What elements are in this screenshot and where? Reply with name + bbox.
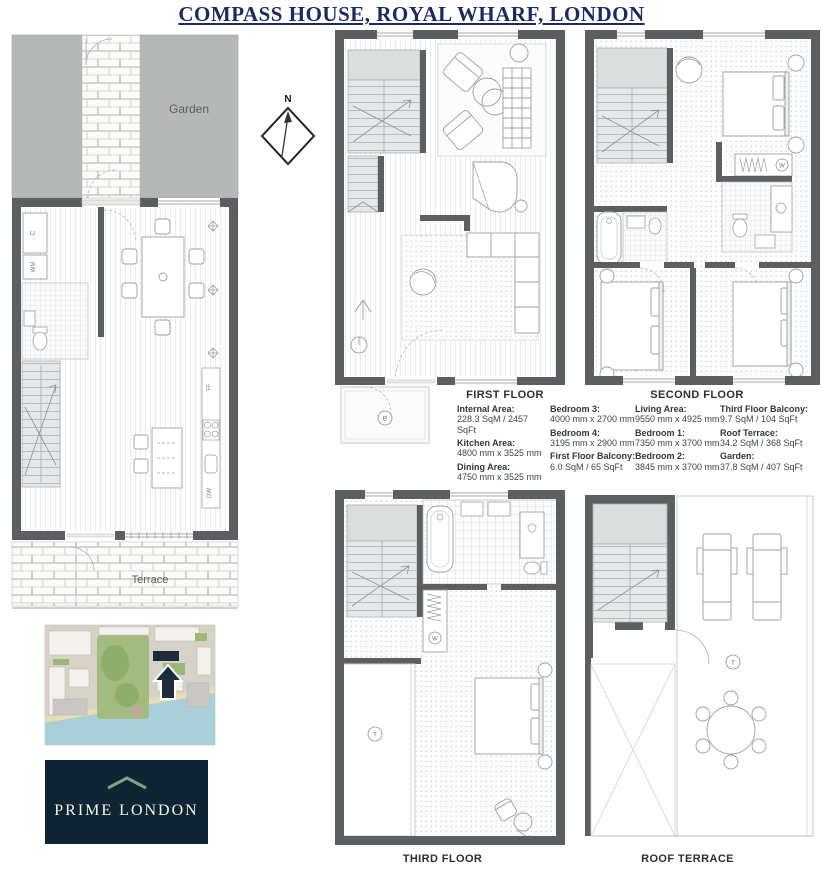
spec-label: Internal Area: xyxy=(457,404,549,414)
side-table-icon xyxy=(788,137,804,153)
ground-stairs xyxy=(22,361,60,487)
spec-value: 3195 mm x 2900 mm xyxy=(550,438,645,448)
spec-value: 9550 mm x 4925 mm xyxy=(635,414,727,424)
second-floor-specs-col2: Third Floor Balcony: 9.7 SqM / 104 SqFt … xyxy=(720,404,820,475)
garden-label: Garden xyxy=(169,102,209,116)
wardrobe-icon: W xyxy=(423,590,447,652)
spec-value: 9.7 SqM / 104 SqFt xyxy=(720,414,820,424)
park-green xyxy=(97,635,149,719)
terrace-symbol: T xyxy=(373,732,377,739)
pillow-icon xyxy=(773,106,784,130)
first-floor-specs-col1: Internal Area: 228.3 SqM / 2457 SqFt Kit… xyxy=(457,404,549,485)
second-floor-heading: SECOND FLOOR xyxy=(627,389,767,401)
roof-deck xyxy=(677,496,813,836)
site-map xyxy=(45,625,215,745)
wardrobe-symbol: W xyxy=(779,164,785,170)
garden-area: Garden xyxy=(12,35,238,198)
spec-label: Roof Terrace: xyxy=(720,428,820,438)
ensuite-bathroom xyxy=(722,182,792,252)
compass-rose: N xyxy=(262,94,314,164)
toilet-icon xyxy=(649,218,661,234)
spec-row: Dining Area: 4750 mm x 3525 mm xyxy=(457,462,549,483)
second-floor-plan: W xyxy=(585,30,820,385)
bedroom2 xyxy=(600,269,663,381)
terrace-area: Terrace xyxy=(12,542,238,608)
sink-icon xyxy=(627,216,645,228)
first-floor-plan: B xyxy=(335,30,565,443)
spec-label: First Floor Balcony: xyxy=(550,451,645,461)
sink-icon xyxy=(461,502,483,516)
cupboard-label: C xyxy=(30,230,37,235)
wardrobe-icon: W xyxy=(735,154,792,176)
side-table-icon xyxy=(788,55,804,71)
logo-text: PRIME LONDON xyxy=(45,802,208,820)
first-floor-specs-col2: Bedroom 3: 4000 mm x 2700 mm Bedroom 4: … xyxy=(550,404,645,475)
spec-value: 34.2 SqM / 368 SqFt xyxy=(720,438,820,448)
spec-value: 228.3 SqM / 2457 SqFt xyxy=(457,414,549,435)
toilet-icon xyxy=(733,219,747,237)
spec-row: Internal Area: 228.3 SqM / 2457 SqFt xyxy=(457,404,549,435)
spec-row: Bedroom 2: 3845 mm x 3700 mm xyxy=(635,451,727,472)
spec-value: 37.8 SqM / 407 SqFt xyxy=(720,462,820,472)
spec-value: 6.0 SqM / 65 SqFt xyxy=(550,462,645,472)
spec-label: Bedroom 2: xyxy=(635,451,727,461)
spec-row: Roof Terrace: 34.2 SqM / 368 SqFt xyxy=(720,428,820,449)
spec-label: Bedroom 4: xyxy=(550,428,645,438)
toilet-icon xyxy=(524,562,540,574)
spec-row: First Floor Balcony: 6.0 SqM / 65 SqFt xyxy=(550,451,645,472)
balcony-symbol: B xyxy=(383,416,387,423)
spec-row: Bedroom 3: 4000 mm x 2700 mm xyxy=(550,404,645,425)
living-area xyxy=(438,44,546,156)
spec-value: 3845 mm x 3700 mm xyxy=(635,462,727,472)
sink-icon xyxy=(755,235,775,248)
vanity-icon xyxy=(520,512,544,558)
roof-terrace-caption: ROOF TERRACE xyxy=(630,853,745,865)
first-balcony: B xyxy=(341,387,429,443)
roof-void xyxy=(585,658,675,836)
floorplan-sheet: COMPASS HOUSE, ROYAL WHARF, LONDON xyxy=(0,0,823,877)
spec-value: 4750 mm x 3525 mm xyxy=(457,472,549,482)
dishwasher-label: DW xyxy=(207,488,213,498)
first-floor-heading: FIRST FLOOR xyxy=(450,389,560,401)
logo-roof-icon xyxy=(105,776,149,790)
kitchen-sink-icon xyxy=(205,455,217,473)
second-stairs xyxy=(597,48,673,163)
spec-row: Third Floor Balcony: 9.7 SqM / 104 SqFt xyxy=(720,404,820,425)
pillow-icon xyxy=(773,76,784,100)
side-table-icon xyxy=(600,269,614,283)
spec-value: 4000 mm x 2700 mm xyxy=(550,414,645,424)
spec-row: Kitchen Area: 4800 mm x 3525 mm xyxy=(457,438,549,459)
spec-label: Dining Area: xyxy=(457,462,549,472)
spec-label: Living Area: xyxy=(635,404,727,414)
wardrobe-symbol: W xyxy=(432,637,438,643)
sink-icon xyxy=(488,502,510,516)
third-terrace: T xyxy=(337,658,421,836)
sun-lounger-icon xyxy=(747,534,787,620)
washing-machine-label: WM xyxy=(31,262,37,273)
third-bathroom xyxy=(423,500,557,584)
spec-row: Bedroom 4: 3195 mm x 2900 mm xyxy=(550,428,645,449)
terrace-symbol: T xyxy=(731,660,735,667)
shelf-unit-icon xyxy=(503,68,531,148)
highlighted-building xyxy=(153,651,179,661)
side-table-icon xyxy=(789,269,803,283)
spec-label: Kitchen Area: xyxy=(457,438,549,448)
spec-row: Living Area: 9550 mm x 4925 mm xyxy=(635,404,727,425)
second-floor-specs-col1: Living Area: 9550 mm x 4925 mm Bedroom 1… xyxy=(635,404,727,475)
wc-room xyxy=(22,283,88,359)
sun-lounger-icon xyxy=(697,534,737,620)
bathtub-icon xyxy=(597,212,621,264)
third-floor-plan: W xyxy=(335,490,565,845)
terrace-label: Terrace xyxy=(132,574,169,586)
ground-floor-plan: Garden C WM xyxy=(12,35,238,608)
third-floor-caption: THIRD FLOOR xyxy=(385,853,500,865)
fridge-freezer-label: FF xyxy=(207,383,213,391)
side-table-icon xyxy=(538,663,552,677)
spec-label: Third Floor Balcony: xyxy=(720,404,820,414)
hob-icon xyxy=(203,420,219,440)
family-bathroom xyxy=(594,206,667,264)
spec-value: 7350 mm x 3700 mm xyxy=(635,438,727,448)
roof-terrace-plan: T xyxy=(585,495,813,836)
third-stairs xyxy=(347,505,423,617)
interior-wall xyxy=(98,207,104,337)
spec-label: Bedroom 1: xyxy=(635,428,727,438)
spec-value: 4800 mm x 3525 mm xyxy=(457,448,549,458)
shower-icon xyxy=(771,186,792,232)
sink-icon xyxy=(24,311,35,326)
spec-label: Bedroom 3: xyxy=(550,404,645,414)
side-table-icon xyxy=(789,363,803,377)
prime-london-logo: PRIME LONDON xyxy=(45,760,208,844)
north-label: N xyxy=(284,94,291,105)
armchair-icon xyxy=(676,57,702,83)
spec-label: Garden: xyxy=(720,451,820,461)
side-table-icon xyxy=(538,755,552,769)
spec-row: Garden: 37.8 SqM / 407 SqFt xyxy=(720,451,820,472)
spec-row: Bedroom 1: 7350 mm x 3700 mm xyxy=(635,428,727,449)
